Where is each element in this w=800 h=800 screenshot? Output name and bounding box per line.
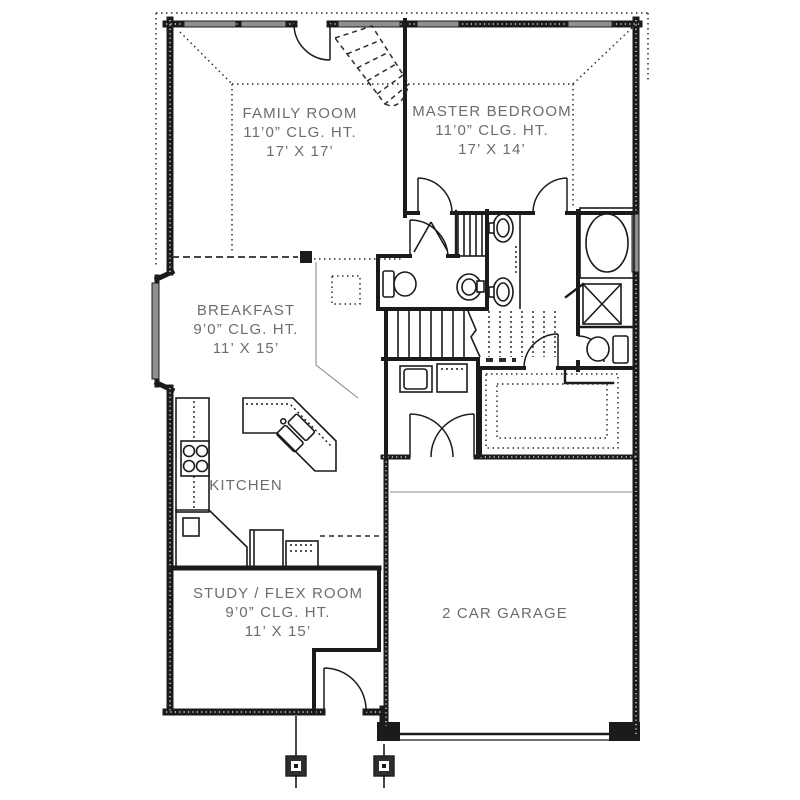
window bbox=[417, 21, 459, 27]
window bbox=[241, 21, 286, 27]
roofline-dotted bbox=[156, 13, 648, 268]
stove-icon bbox=[181, 441, 209, 476]
window bbox=[632, 214, 639, 272]
room-name: FAMILY ROOM bbox=[243, 105, 358, 122]
washer-icon bbox=[400, 366, 432, 392]
room-label-master-bedroom: MASTER BEDROOM 11’0” CLG. HT. 17’ X 14’ bbox=[412, 103, 572, 158]
window bbox=[338, 21, 400, 27]
room-label-family-room: FAMILY ROOM 11’0” CLG. HT. 17’ X 17’ bbox=[243, 105, 358, 160]
linen-shelves bbox=[458, 212, 486, 256]
corner-pantry bbox=[176, 510, 247, 567]
floor-plan: FAMILY ROOM 11’0” CLG. HT. 17’ X 17’ MAS… bbox=[0, 0, 800, 800]
room-name: STUDY / FLEX ROOM bbox=[193, 585, 363, 602]
closet-shelving-dotted bbox=[486, 374, 618, 448]
room-label-study-flex: STUDY / FLEX ROOM 9’0” CLG. HT. 11’ X 15… bbox=[193, 585, 363, 640]
master-door-right bbox=[533, 178, 567, 213]
patio-door bbox=[294, 24, 330, 60]
room-label-breakfast: BREAKFAST 9’0” CLG. HT. 11’ X 15’ bbox=[193, 302, 298, 357]
stair-break-line bbox=[468, 311, 480, 357]
room-label-kitchen: KITCHEN bbox=[209, 477, 283, 494]
room-dims: 11’ X 15’ bbox=[245, 623, 312, 640]
kitchen-island bbox=[243, 398, 336, 471]
shower-icon bbox=[583, 284, 621, 324]
refrigerator-icon bbox=[250, 530, 283, 567]
double-sink-icon bbox=[272, 409, 315, 452]
ceiling-feature bbox=[332, 276, 360, 304]
window bbox=[568, 21, 612, 27]
hall-door bbox=[410, 220, 448, 256]
powder-room bbox=[383, 271, 484, 300]
vanity-sink-icon bbox=[489, 278, 513, 306]
room-ceiling: 11’0” CLG. HT. bbox=[435, 122, 549, 139]
staircase bbox=[398, 311, 555, 360]
shower-door bbox=[566, 284, 583, 297]
room-dims: 17’ X 17’ bbox=[266, 143, 334, 160]
bay-window bbox=[152, 283, 159, 379]
garage-corner-post bbox=[609, 722, 640, 741]
pedestal-sink-icon bbox=[457, 274, 484, 300]
room-name: KITCHEN bbox=[209, 477, 283, 494]
garage-corner-post bbox=[377, 722, 400, 741]
toilet-icon bbox=[587, 336, 628, 363]
base-cabinet bbox=[286, 541, 318, 567]
room-dims: 11’ X 15’ bbox=[213, 340, 280, 357]
room-label-garage: 2 CAR GARAGE bbox=[442, 605, 568, 622]
room-name: BREAKFAST bbox=[197, 302, 295, 319]
closet-door bbox=[524, 334, 558, 368]
bathtub-icon bbox=[580, 208, 634, 278]
room-ceiling: 9’0” CLG. HT. bbox=[193, 321, 298, 338]
master-door-left bbox=[418, 178, 452, 213]
window bbox=[184, 21, 236, 27]
floor-plan-canvas: FAMILY ROOM 11’0” CLG. HT. 17’ X 17’ MAS… bbox=[0, 0, 800, 800]
porch-column bbox=[374, 756, 394, 776]
room-ceiling: 11’0” CLG. HT. bbox=[243, 124, 357, 141]
dryer-icon bbox=[437, 364, 467, 392]
laundry bbox=[400, 364, 467, 392]
optional-attic-stair-dashed bbox=[335, 26, 409, 106]
room-name: MASTER BEDROOM bbox=[412, 103, 572, 120]
room-dims: 17’ X 14’ bbox=[458, 141, 526, 158]
front-door bbox=[324, 668, 366, 712]
exterior-walls bbox=[157, 20, 640, 741]
toilet-icon bbox=[383, 271, 416, 297]
room-name: 2 CAR GARAGE bbox=[442, 605, 568, 622]
room-ceiling: 9’0” CLG. HT. bbox=[225, 604, 330, 621]
vanity-sink-icon bbox=[489, 214, 513, 242]
column-post bbox=[300, 251, 312, 263]
porch-column bbox=[286, 756, 306, 776]
